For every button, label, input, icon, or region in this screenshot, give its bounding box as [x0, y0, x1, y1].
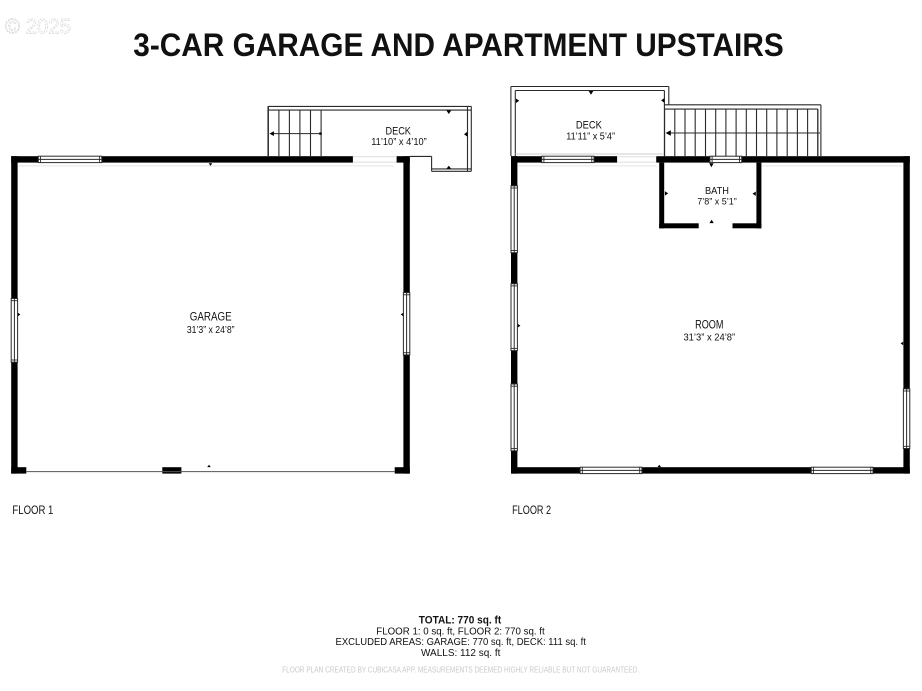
svg-text:DECK: DECK [576, 120, 603, 132]
svg-text:FLOOR 1: FLOOR 1 [12, 503, 53, 517]
svg-text:FLOOR 2: FLOOR 2 [512, 503, 551, 517]
svg-text:31’3” x 24’8”: 31’3” x 24’8” [683, 331, 735, 343]
svg-text:BATH: BATH [705, 186, 729, 197]
svg-text:GARAGE: GARAGE [190, 312, 232, 324]
svg-text:11’11” x 5’4”: 11’11” x 5’4” [566, 131, 615, 142]
svg-text:31’3” x 24’8”: 31’3” x 24’8” [187, 324, 235, 336]
svg-text:WALLS: 112 sq. ft: WALLS: 112 sq. ft [421, 647, 500, 659]
svg-text:11’10” x 4’10”: 11’10” x 4’10” [371, 137, 427, 148]
svg-text:© 2025: © 2025 [5, 15, 71, 39]
svg-text:DECK: DECK [386, 126, 412, 138]
svg-text:ROOM: ROOM [695, 319, 723, 331]
svg-text:7’8” x 5’1”: 7’8” x 5’1” [697, 197, 737, 207]
svg-text:3-CAR GARAGE AND APARTMENT UPS: 3-CAR GARAGE AND APARTMENT UPSTAIRS [133, 27, 783, 63]
svg-text:FLOOR PLAN CREATED BY CUBICASA: FLOOR PLAN CREATED BY CUBICASA APP. MEAS… [282, 666, 639, 675]
